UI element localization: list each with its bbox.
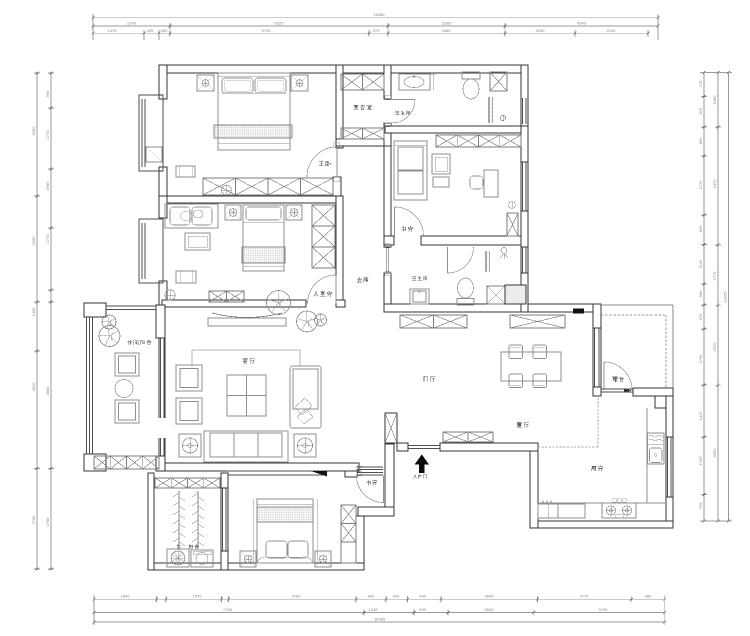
svg-text:570: 570 <box>373 28 380 33</box>
svg-text:1130: 1130 <box>698 259 703 268</box>
svg-text:3470: 3470 <box>712 179 717 189</box>
svg-text:2845: 2845 <box>485 607 495 612</box>
svg-text:875: 875 <box>698 107 703 114</box>
svg-text:4340: 4340 <box>577 21 587 26</box>
svg-text:2768: 2768 <box>45 517 50 527</box>
svg-text:1695: 1695 <box>45 181 50 191</box>
svg-text:3795: 3795 <box>599 607 609 612</box>
svg-text:2240: 2240 <box>127 21 137 26</box>
svg-text:1770: 1770 <box>698 180 703 190</box>
svg-text:1770: 1770 <box>45 130 50 140</box>
svg-text:985: 985 <box>645 594 652 599</box>
svg-text:990: 990 <box>419 607 426 612</box>
svg-text:670: 670 <box>698 313 703 320</box>
svg-text:13155: 13155 <box>723 291 728 303</box>
svg-text:1775: 1775 <box>712 271 717 281</box>
svg-text:1435: 1435 <box>31 307 36 317</box>
svg-text:1760: 1760 <box>698 456 703 466</box>
svg-text:2030: 2030 <box>536 28 546 33</box>
svg-text:990: 990 <box>419 594 426 599</box>
svg-text:6325: 6325 <box>275 21 285 26</box>
svg-text:850: 850 <box>698 137 703 144</box>
svg-text:2768: 2768 <box>31 515 36 525</box>
svg-text:2770: 2770 <box>580 594 590 599</box>
svg-text:2370: 2370 <box>712 342 717 352</box>
svg-text:1770: 1770 <box>45 234 50 244</box>
svg-text:16385: 16385 <box>374 617 386 622</box>
svg-text:1580: 1580 <box>712 95 717 105</box>
svg-text:4810: 4810 <box>31 382 36 392</box>
svg-text:1475: 1475 <box>108 28 118 33</box>
svg-text:4580: 4580 <box>45 386 50 396</box>
svg-text:3580: 3580 <box>31 126 36 136</box>
svg-text:16385: 16385 <box>373 12 385 17</box>
svg-text:630: 630 <box>393 594 400 599</box>
svg-text:715: 715 <box>698 80 703 87</box>
svg-text:1438: 1438 <box>369 607 379 612</box>
svg-text:2965: 2965 <box>31 236 36 246</box>
svg-text:1570: 1570 <box>193 594 203 599</box>
svg-text:5755: 5755 <box>262 28 272 33</box>
svg-text:750: 750 <box>698 502 703 509</box>
svg-text:800: 800 <box>368 594 375 599</box>
svg-text:3385: 3385 <box>442 28 452 33</box>
svg-text:7765: 7765 <box>223 607 233 612</box>
svg-text:3385: 3385 <box>442 21 452 26</box>
svg-text:330: 330 <box>161 28 168 33</box>
svg-text:2110: 2110 <box>607 28 616 33</box>
svg-text:3650: 3650 <box>712 448 717 458</box>
svg-text:435: 435 <box>147 28 154 33</box>
svg-text:2845: 2845 <box>485 594 495 599</box>
svg-text:3780: 3780 <box>292 594 302 599</box>
svg-text:995: 995 <box>45 90 50 97</box>
svg-text:1790: 1790 <box>698 354 703 364</box>
svg-text:800: 800 <box>698 225 703 232</box>
svg-text:1470: 1470 <box>698 411 703 421</box>
svg-text:1800: 1800 <box>121 594 131 599</box>
svg-text:685: 685 <box>698 290 703 297</box>
